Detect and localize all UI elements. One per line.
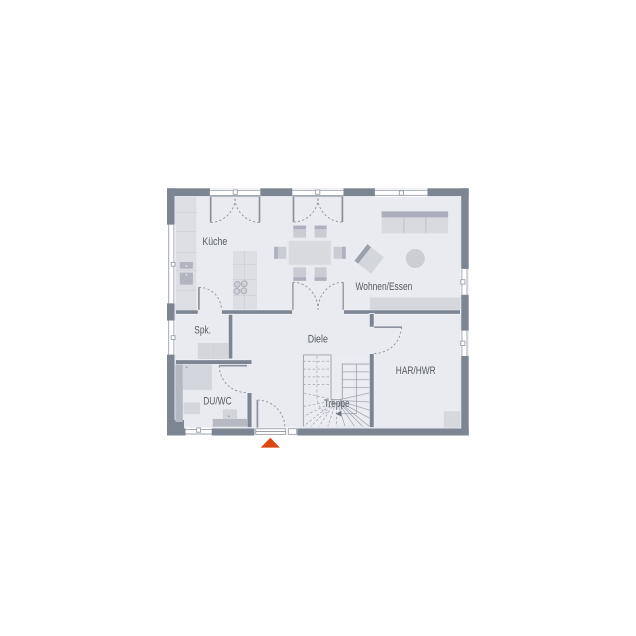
svg-text:HAR/HWR: HAR/HWR — [396, 365, 436, 377]
svg-text:Wohnen/Essen: Wohnen/Essen — [356, 281, 413, 293]
svg-text:Spk.: Spk. — [194, 324, 211, 336]
svg-text:Küche: Küche — [202, 236, 227, 248]
svg-text:Treppe: Treppe — [324, 398, 350, 410]
svg-text:DU/WC: DU/WC — [203, 396, 232, 408]
svg-text:Diele: Diele — [308, 334, 328, 346]
